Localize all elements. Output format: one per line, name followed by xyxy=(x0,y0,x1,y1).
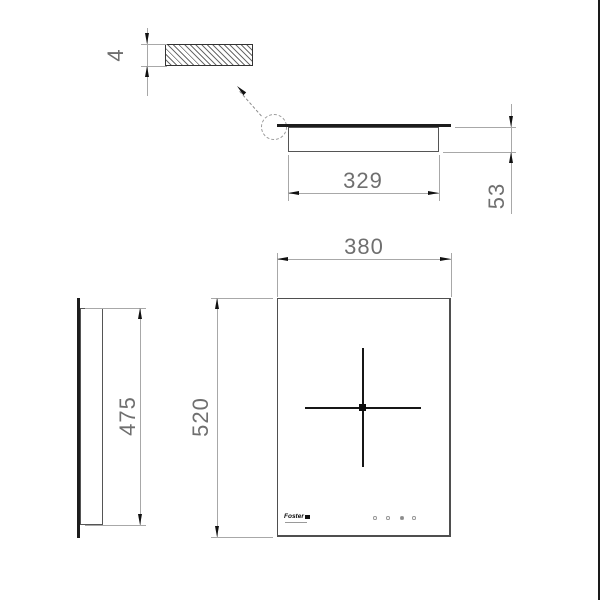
height53-ext-line-bottom xyxy=(443,152,516,153)
front-view-body xyxy=(288,127,439,152)
arrowhead-icon xyxy=(138,514,142,525)
cooking-zone-center-mark xyxy=(359,404,366,411)
plan-view-outline xyxy=(277,298,451,537)
depth520-dim-label: 520 xyxy=(186,402,216,432)
arrowhead-icon xyxy=(145,66,149,77)
glass-section-hatch xyxy=(165,44,253,66)
width329-dim-label: 329 xyxy=(336,169,390,193)
thickness-dim-label: 4 xyxy=(103,42,129,68)
arrowhead-icon xyxy=(138,308,142,319)
brand-flag-icon xyxy=(305,515,310,519)
brand-logo: Foster xyxy=(284,514,318,523)
arrowhead-icon xyxy=(440,257,451,261)
arrowhead-icon xyxy=(428,191,439,195)
touch-control-dot xyxy=(412,516,416,520)
width380-dim-label: 380 xyxy=(337,235,391,259)
arrowhead-icon xyxy=(215,526,219,537)
depth520-value: 520 xyxy=(189,397,213,437)
technical-drawing-canvas: 4 329 53 380 520 Foster xyxy=(0,0,600,600)
height53-dim-label: 53 xyxy=(484,183,510,209)
height53-ext-line-top xyxy=(455,127,516,128)
arrowhead-icon xyxy=(509,116,513,127)
touch-control-dot xyxy=(373,516,377,520)
arrowhead-icon xyxy=(145,33,149,44)
touch-control-dot xyxy=(386,516,390,520)
detail-leader-line xyxy=(239,91,262,116)
arrowhead-icon xyxy=(509,152,513,163)
arrowhead-icon xyxy=(277,257,288,261)
brand-logo-subtext xyxy=(285,522,307,523)
height53-value: 53 xyxy=(485,183,509,209)
arrowhead-icon xyxy=(288,191,299,195)
depth520-ext-line-top xyxy=(211,298,273,299)
arrowhead-icon xyxy=(215,298,219,309)
touch-control-dot xyxy=(400,516,404,520)
thickness-ext-line-top xyxy=(141,44,167,45)
side-view-body xyxy=(80,308,104,525)
depth520-ext-line-bottom xyxy=(211,537,273,538)
depth520-dim-line xyxy=(217,298,218,537)
brand-logo-text: Foster xyxy=(284,514,304,521)
height475-dim-label: 475 xyxy=(113,401,143,431)
thickness-value: 4 xyxy=(104,48,128,61)
height475-value: 475 xyxy=(116,396,140,436)
